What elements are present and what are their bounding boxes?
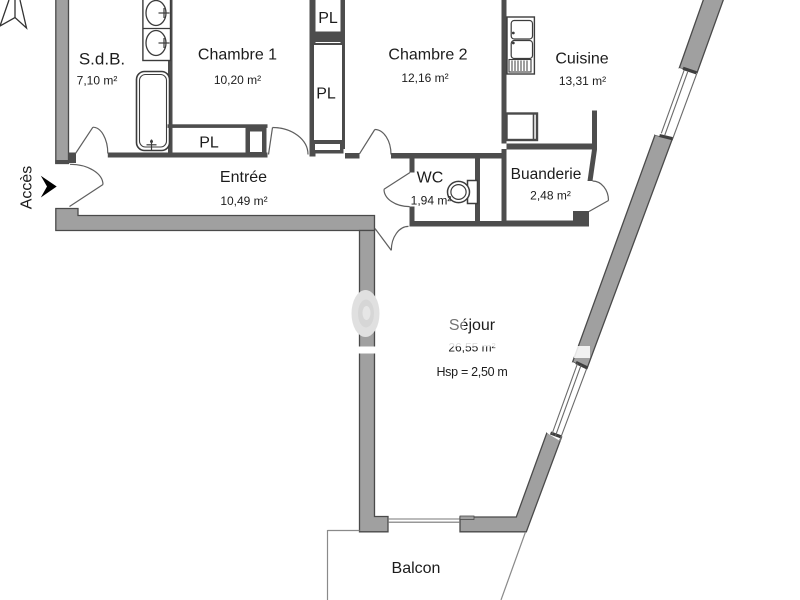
svg-text:WC: WC [417, 170, 444, 187]
svg-text:1,94 m²: 1,94 m² [411, 194, 452, 208]
svg-text:7,10 m²: 7,10 m² [77, 74, 118, 88]
svg-text:13,31 m²: 13,31 m² [559, 74, 606, 88]
svg-text:Balcon: Balcon [392, 560, 441, 577]
svg-text:12,16 m²: 12,16 m² [401, 71, 448, 85]
svg-text:10,20 m²: 10,20 m² [214, 73, 261, 87]
svg-text:10,49 m²: 10,49 m² [220, 194, 267, 208]
svg-text:Chambre 2: Chambre 2 [388, 47, 467, 64]
svg-text:Hsp = 2,50 m: Hsp = 2,50 m [436, 365, 507, 379]
svg-text:S.d.B.: S.d.B. [79, 49, 125, 68]
svg-text:Cuisine: Cuisine [555, 51, 608, 68]
svg-text:Entrée: Entrée [220, 169, 267, 186]
svg-text:PL: PL [199, 135, 219, 152]
svg-text:2,48 m²: 2,48 m² [530, 189, 571, 203]
svg-text:PL: PL [316, 86, 336, 103]
svg-text:Chambre 1: Chambre 1 [198, 47, 277, 64]
svg-text:Buanderie: Buanderie [511, 166, 582, 183]
svg-text:Accès: Accès [19, 166, 36, 210]
svg-text:PL: PL [318, 10, 338, 27]
